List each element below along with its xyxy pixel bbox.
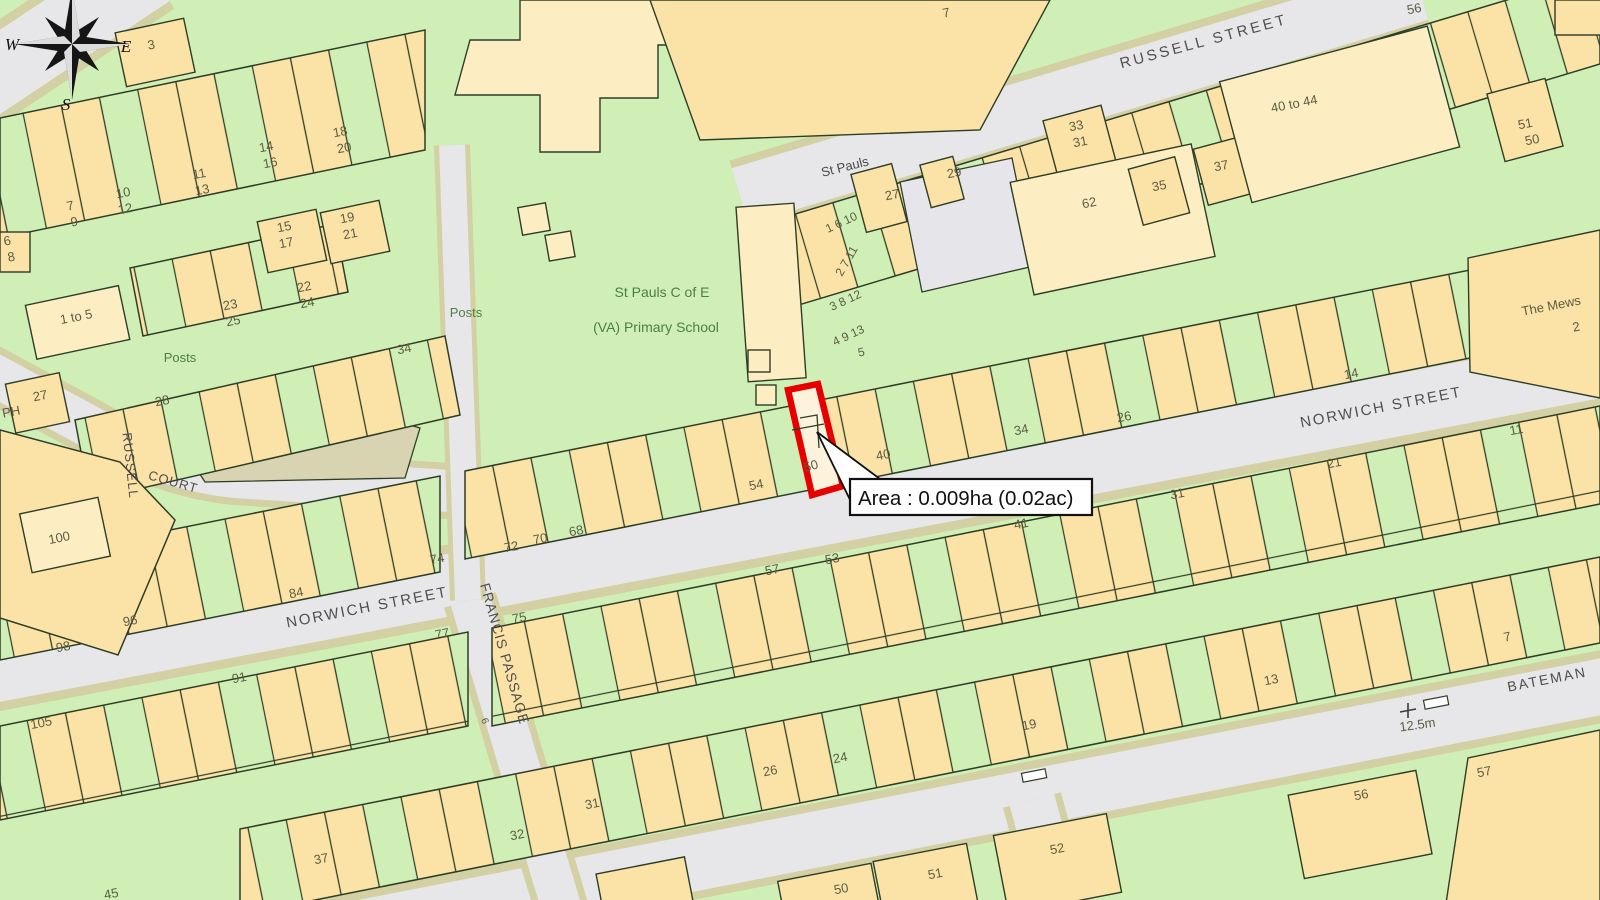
house-number-label: 14 bbox=[1343, 365, 1360, 382]
place-label: Posts bbox=[164, 350, 197, 365]
house-number-label: 21 bbox=[1326, 454, 1343, 471]
house-number-label: 23 bbox=[222, 296, 239, 313]
house-number-label: 37 bbox=[1213, 157, 1230, 174]
compass-letter: S bbox=[62, 95, 71, 114]
house-number-label: 29 bbox=[946, 164, 963, 181]
house-number-label: 53 bbox=[824, 550, 841, 567]
house-number-label: 24 bbox=[299, 294, 316, 311]
house-number-label: 34 bbox=[1013, 421, 1030, 438]
map-viewport: Area : 0.009ha (0.02ac) RUSSELL STREETNO… bbox=[0, 0, 1600, 900]
house-number-label: 51 bbox=[927, 865, 944, 882]
house-number-label: 18 bbox=[332, 123, 349, 140]
house-number-label: 32 bbox=[509, 826, 526, 843]
house-number-label: 56 bbox=[1406, 0, 1423, 17]
place-label: (VA) Primary School bbox=[593, 319, 719, 335]
house-number-label: 28 bbox=[154, 392, 171, 409]
house-number-label: 50 bbox=[1524, 131, 1541, 148]
house-number-label: 10 bbox=[115, 184, 132, 201]
house-number-label: 13 bbox=[194, 181, 211, 198]
house-number-label: 68 bbox=[568, 522, 585, 539]
house-number-label: 15 bbox=[276, 218, 293, 235]
house-number-label: 51 bbox=[1517, 115, 1534, 132]
house-number-label: 14 bbox=[258, 138, 275, 155]
house-number-label: 50 bbox=[833, 880, 850, 897]
house-number-label: 27 bbox=[884, 186, 901, 203]
map-canvas[interactable]: Area : 0.009ha (0.02ac) RUSSELL STREETNO… bbox=[0, 0, 1600, 900]
house-number-label: 72 bbox=[503, 538, 520, 555]
house-number-label: 25 bbox=[225, 312, 242, 329]
house-number-label: 70 bbox=[532, 530, 549, 547]
house-number-label: 31 bbox=[1169, 485, 1186, 502]
house-number-label: 20 bbox=[336, 139, 353, 156]
house-number-label: 91 bbox=[231, 669, 248, 686]
house-number-label: 40 bbox=[875, 446, 892, 463]
house-number-label: 12 bbox=[117, 200, 134, 217]
house-number-label: 45 bbox=[103, 885, 120, 900]
place-label: St Pauls C of E bbox=[615, 284, 710, 300]
house-number-label: 57 bbox=[764, 561, 781, 578]
house-number-label: 11 bbox=[1508, 421, 1524, 438]
house-number-label: 77 bbox=[434, 625, 451, 642]
house-number-label: 26 bbox=[1116, 408, 1133, 425]
house-number-label: 26 bbox=[762, 762, 779, 779]
house-number-label: 21 bbox=[342, 225, 359, 242]
house-number-label: 13 bbox=[1263, 671, 1280, 688]
house-number-label: 57 bbox=[1476, 763, 1493, 780]
house-number-label: 62 bbox=[1081, 194, 1098, 211]
house-number-label: 34 bbox=[396, 340, 413, 357]
house-number-label: 22 bbox=[296, 278, 313, 295]
house-number-label: 52 bbox=[1049, 840, 1066, 857]
house-number-label: 56 bbox=[1353, 786, 1370, 803]
house-number-label: 54 bbox=[748, 476, 765, 493]
house-number-label: 16 bbox=[262, 154, 279, 171]
house-number-label: 84 bbox=[288, 584, 305, 601]
house-number-label: 98 bbox=[55, 638, 72, 655]
house-number-label: 41 bbox=[1013, 515, 1030, 532]
house-number-label: 19 bbox=[1021, 716, 1038, 733]
house-number-label: 31 bbox=[584, 795, 601, 812]
place-label: Posts bbox=[450, 305, 483, 320]
house-number-label: 24 bbox=[832, 749, 849, 766]
house-number-label: 33 bbox=[1068, 117, 1085, 134]
house-number-label: 35 bbox=[1151, 177, 1168, 194]
house-number-label: 11 bbox=[191, 165, 207, 182]
house-number-label: 75 bbox=[511, 609, 528, 626]
house-number-label: 74 bbox=[429, 550, 446, 567]
house-number-label: 96 bbox=[122, 612, 139, 629]
compass-letter: E bbox=[120, 37, 132, 56]
house-number-label: 31 bbox=[1072, 133, 1089, 150]
house-number-label: 19 bbox=[339, 209, 356, 226]
house-number-label: 17 bbox=[278, 234, 295, 251]
area-callout-text: Area : 0.009ha (0.02ac) bbox=[858, 487, 1073, 510]
house-number-label: 27 bbox=[32, 387, 49, 404]
house-number-label: 37 bbox=[313, 850, 330, 867]
